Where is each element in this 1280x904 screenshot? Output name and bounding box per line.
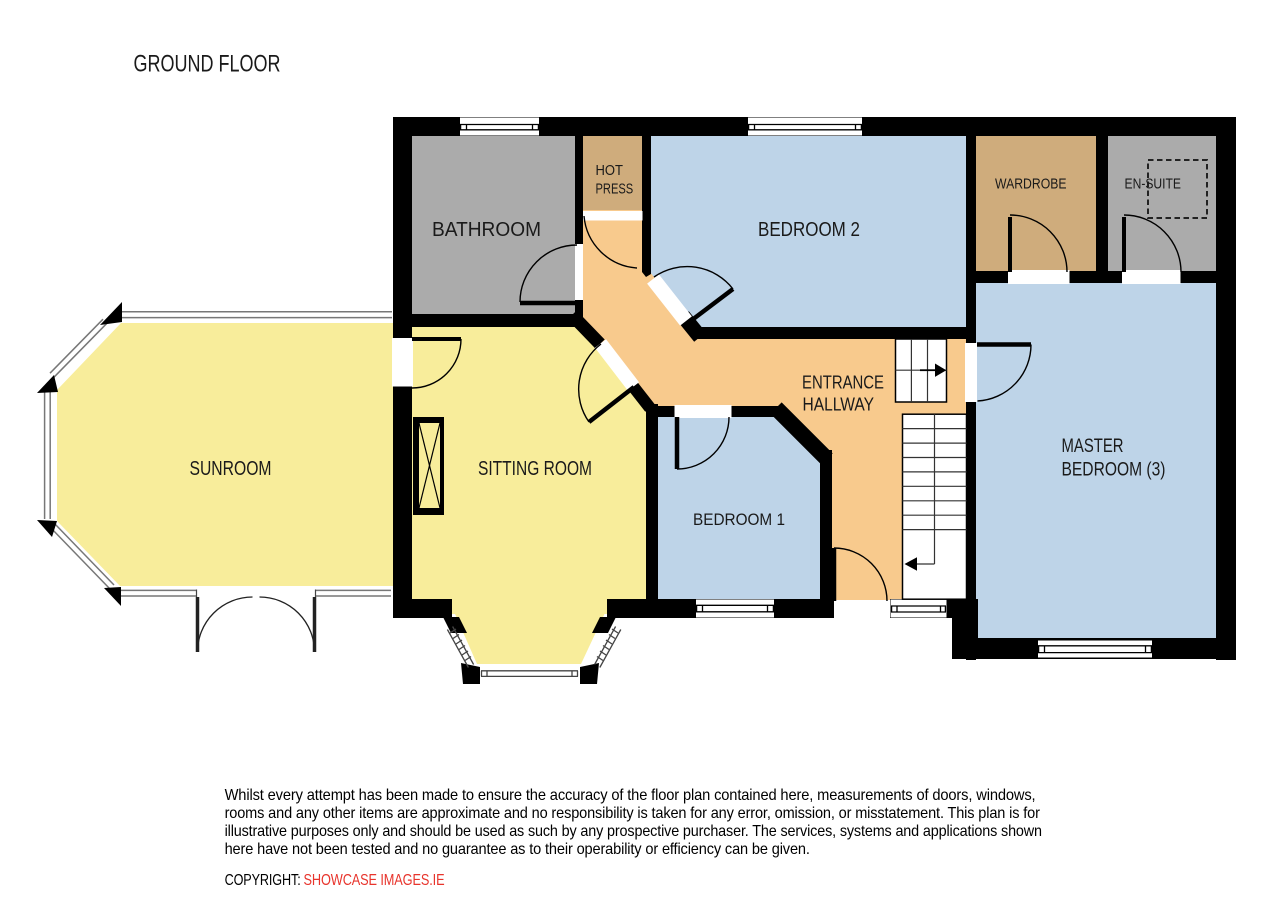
svg-text:EN-SUITE: EN-SUITE (1125, 177, 1182, 193)
svg-text:WARDROBE: WARDROBE (995, 177, 1067, 193)
svg-text:PRESS: PRESS (596, 181, 634, 198)
svg-text:BEDROOM (3): BEDROOM (3) (1062, 459, 1166, 481)
svg-text:rooms and any other items are: rooms and any other items are approximat… (225, 805, 1041, 822)
svg-text:COPYRIGHT:: COPYRIGHT: (225, 872, 301, 889)
svg-text:SITTING ROOM: SITTING ROOM (478, 458, 592, 480)
svg-text:here have not been tested and: here have not been tested and no guarant… (225, 841, 810, 858)
svg-text:SHOWCASE IMAGES.IE: SHOWCASE IMAGES.IE (304, 872, 445, 889)
svg-text:MASTER: MASTER (1062, 435, 1124, 457)
svg-text:SUNROOM: SUNROOM (190, 458, 272, 480)
svg-text:BEDROOM 1: BEDROOM 1 (693, 510, 785, 529)
svg-text:HALLWAY: HALLWAY (803, 395, 875, 415)
svg-text:BATHROOM: BATHROOM (432, 219, 541, 241)
svg-text:illustrative purposes only and: illustrative purposes only and should be… (225, 823, 1042, 840)
svg-text:GROUND FLOOR: GROUND FLOOR (134, 51, 281, 78)
svg-text:Whilst every attempt has been: Whilst every attempt has been made to en… (225, 787, 1036, 804)
svg-text:HOT: HOT (596, 162, 624, 179)
svg-text:ENTRANCE: ENTRANCE (802, 373, 884, 393)
svg-text:BEDROOM 2: BEDROOM 2 (758, 219, 860, 241)
